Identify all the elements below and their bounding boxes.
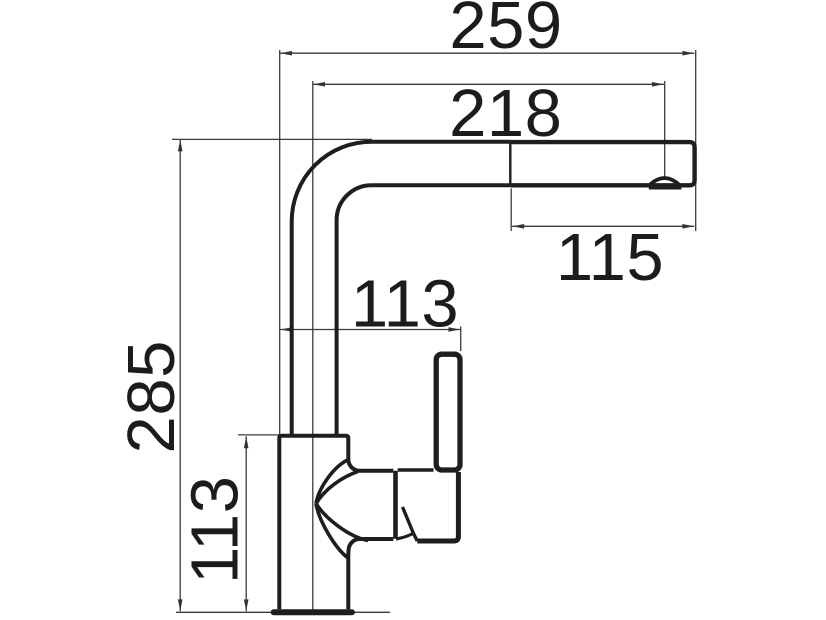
svg-text:285: 285	[114, 340, 189, 453]
svg-text:259: 259	[449, 0, 562, 63]
svg-text:218: 218	[449, 76, 562, 151]
svg-text:113: 113	[177, 476, 252, 584]
svg-text:115: 115	[556, 220, 664, 295]
svg-text:113: 113	[351, 266, 459, 341]
